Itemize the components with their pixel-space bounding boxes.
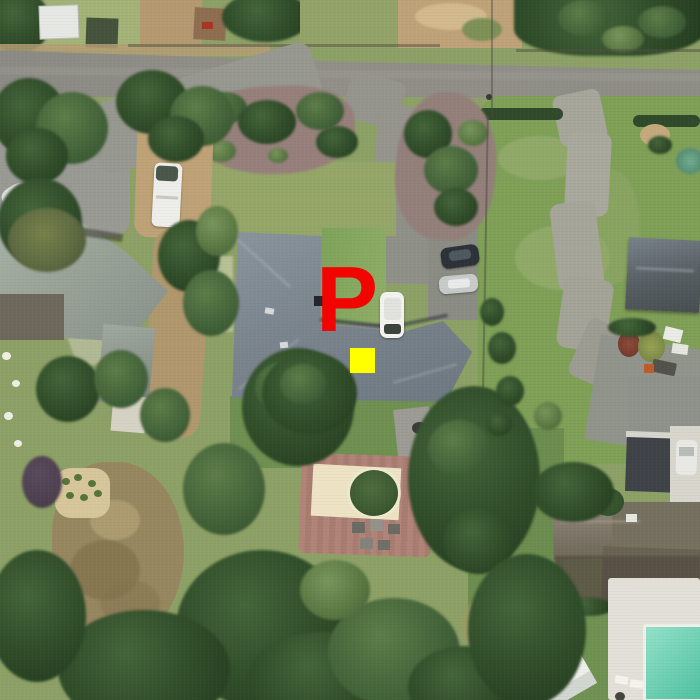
bush (534, 402, 562, 430)
roof-vent (280, 342, 289, 349)
yellow-square-marker[interactable] (350, 348, 375, 373)
tree-canopy (196, 206, 238, 256)
tree-canopy (183, 270, 239, 336)
shrub (268, 148, 288, 163)
shrub (296, 92, 344, 130)
fence-bush (480, 298, 504, 326)
garden-plant (62, 478, 70, 485)
tree-over-left-house (8, 208, 86, 272)
hedge-row (608, 318, 656, 337)
stepping-stone (352, 522, 365, 533)
pool-furniture (615, 692, 625, 700)
fence-bush (496, 376, 524, 406)
purple-tree (22, 456, 62, 508)
tree-canopy (428, 420, 490, 476)
tree-canopy (468, 554, 586, 700)
utility-pole (486, 94, 492, 100)
top-lawn-center (300, 0, 404, 48)
stepping-stone (378, 540, 390, 550)
roof-vent (265, 307, 275, 314)
garden-plant (80, 494, 88, 501)
garden-plant (94, 490, 102, 497)
red-roof-object (202, 22, 213, 29)
white-flowers (14, 440, 22, 447)
white-flowers (12, 380, 20, 387)
van-windshield (384, 324, 401, 334)
bush-cluster (140, 388, 190, 442)
hedge-row (633, 115, 700, 127)
tree-canopy (6, 128, 68, 184)
bush-cluster (94, 350, 148, 408)
fence-line (516, 49, 700, 52)
neighbor-house-roof (625, 237, 700, 313)
grass-patch (462, 18, 502, 41)
white-car-glass (679, 447, 694, 456)
swimming-pool (643, 624, 700, 700)
silver-car-roof (448, 278, 471, 289)
left-house-dark-roof (0, 294, 64, 340)
white-flowers (4, 412, 13, 420)
orange-equipment (644, 364, 654, 373)
tree-canopy (183, 443, 265, 535)
tree-canopy (300, 560, 370, 620)
pool-lounger (630, 679, 644, 688)
white-car (675, 440, 697, 476)
shrub (434, 188, 478, 226)
tree-canopy (148, 116, 204, 162)
power-line (491, 0, 493, 118)
bush (648, 136, 672, 154)
tree-over-roof (280, 364, 326, 404)
garden-plant (74, 474, 82, 481)
garden-plant (88, 480, 96, 487)
white-shed-roof (39, 5, 78, 38)
roof-vent (626, 514, 637, 522)
tree-canopy (532, 462, 614, 522)
rv-cab (156, 165, 179, 181)
shrub (424, 146, 478, 194)
round-garden-feature (676, 148, 700, 174)
white-flowers (2, 352, 11, 360)
garden-plant (66, 492, 74, 499)
aerial-photo: P (0, 0, 700, 700)
fence-bush (488, 332, 516, 364)
fence-bush (486, 412, 512, 436)
stepping-stone (360, 538, 373, 549)
patio-bush (350, 470, 398, 516)
letter-marker-p[interactable]: P (316, 253, 378, 346)
stepping-stone (370, 520, 383, 531)
bush-cluster (36, 356, 100, 422)
dirt-patch (140, 0, 202, 48)
shrub (458, 120, 488, 146)
tree-canopy (558, 0, 610, 36)
shrub (316, 126, 358, 158)
van-roof (384, 298, 401, 320)
tree-canopy (222, 0, 310, 42)
stepping-stone (388, 524, 400, 534)
shrub (238, 100, 296, 144)
white-equipment (671, 343, 688, 355)
tree-canopy (638, 6, 686, 38)
